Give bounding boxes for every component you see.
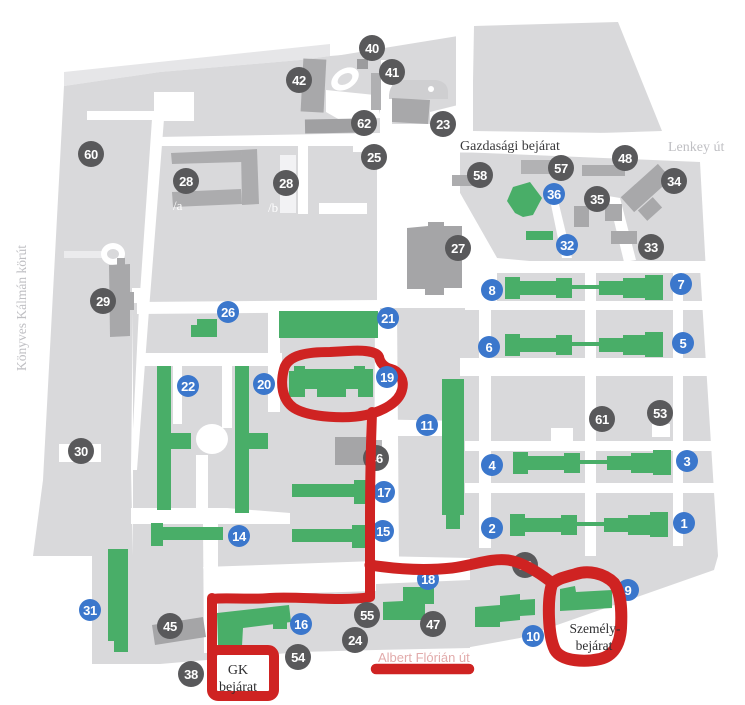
svg-text:32: 32: [560, 238, 574, 253]
svg-text:6: 6: [486, 340, 493, 355]
svg-text:16: 16: [294, 617, 308, 632]
svg-text:2: 2: [489, 521, 496, 536]
svg-text:10: 10: [526, 629, 540, 644]
svg-text:29: 29: [96, 294, 110, 309]
svg-text:61: 61: [595, 412, 609, 427]
svg-text:Albert Flórián út: Albert Flórián út: [378, 650, 470, 665]
svg-text:33: 33: [644, 240, 658, 255]
svg-text:GK: GK: [228, 663, 248, 678]
svg-text:42: 42: [292, 73, 306, 88]
svg-text:35: 35: [590, 192, 604, 207]
svg-text:27: 27: [451, 241, 465, 256]
svg-text:5: 5: [680, 336, 687, 351]
svg-text:3: 3: [684, 454, 691, 469]
svg-text:bejárat: bejárat: [219, 680, 257, 695]
svg-text:Lenkey út: Lenkey út: [668, 140, 724, 155]
svg-text:36: 36: [547, 187, 561, 202]
svg-text:34: 34: [667, 174, 682, 189]
svg-text:Személy-: Személy-: [570, 621, 621, 636]
svg-text:14: 14: [232, 529, 247, 544]
svg-text:41: 41: [385, 65, 399, 80]
svg-text:57: 57: [554, 161, 568, 176]
svg-text:28: 28: [179, 174, 193, 189]
svg-text:24: 24: [348, 633, 363, 648]
svg-text:45: 45: [163, 619, 177, 634]
svg-text:Gazdasági bejárat: Gazdasági bejárat: [460, 139, 560, 154]
svg-text:25: 25: [367, 150, 381, 165]
svg-text:/a: /a: [173, 198, 183, 213]
svg-text:/b: /b: [268, 200, 278, 215]
svg-text:38: 38: [184, 667, 198, 682]
svg-text:26: 26: [221, 305, 235, 320]
svg-text:Könyves Kálmán körút: Könyves Kálmán körút: [14, 245, 29, 371]
svg-text:7: 7: [678, 277, 685, 292]
svg-text:58: 58: [473, 168, 487, 183]
svg-text:21: 21: [381, 311, 395, 326]
svg-text:4: 4: [489, 458, 497, 473]
svg-text:62: 62: [357, 116, 371, 131]
svg-text:22: 22: [181, 379, 195, 394]
svg-text:8: 8: [489, 283, 496, 298]
svg-text:15: 15: [376, 524, 390, 539]
svg-text:19: 19: [380, 370, 394, 385]
svg-text:20: 20: [257, 377, 271, 392]
svg-text:48: 48: [618, 151, 632, 166]
svg-text:47: 47: [426, 617, 440, 632]
svg-text:30: 30: [74, 444, 88, 459]
svg-text:1: 1: [681, 516, 688, 531]
svg-text:53: 53: [653, 406, 667, 421]
svg-text:31: 31: [83, 603, 97, 618]
svg-text:60: 60: [84, 147, 98, 162]
svg-text:bejárat: bejárat: [576, 638, 613, 653]
svg-text:40: 40: [365, 41, 379, 56]
svg-text:11: 11: [420, 418, 433, 433]
svg-text:23: 23: [436, 117, 450, 132]
svg-text:55: 55: [360, 608, 374, 623]
svg-text:9: 9: [625, 583, 632, 598]
svg-text:17: 17: [377, 485, 391, 500]
svg-text:54: 54: [291, 650, 306, 665]
svg-text:28: 28: [279, 176, 293, 191]
